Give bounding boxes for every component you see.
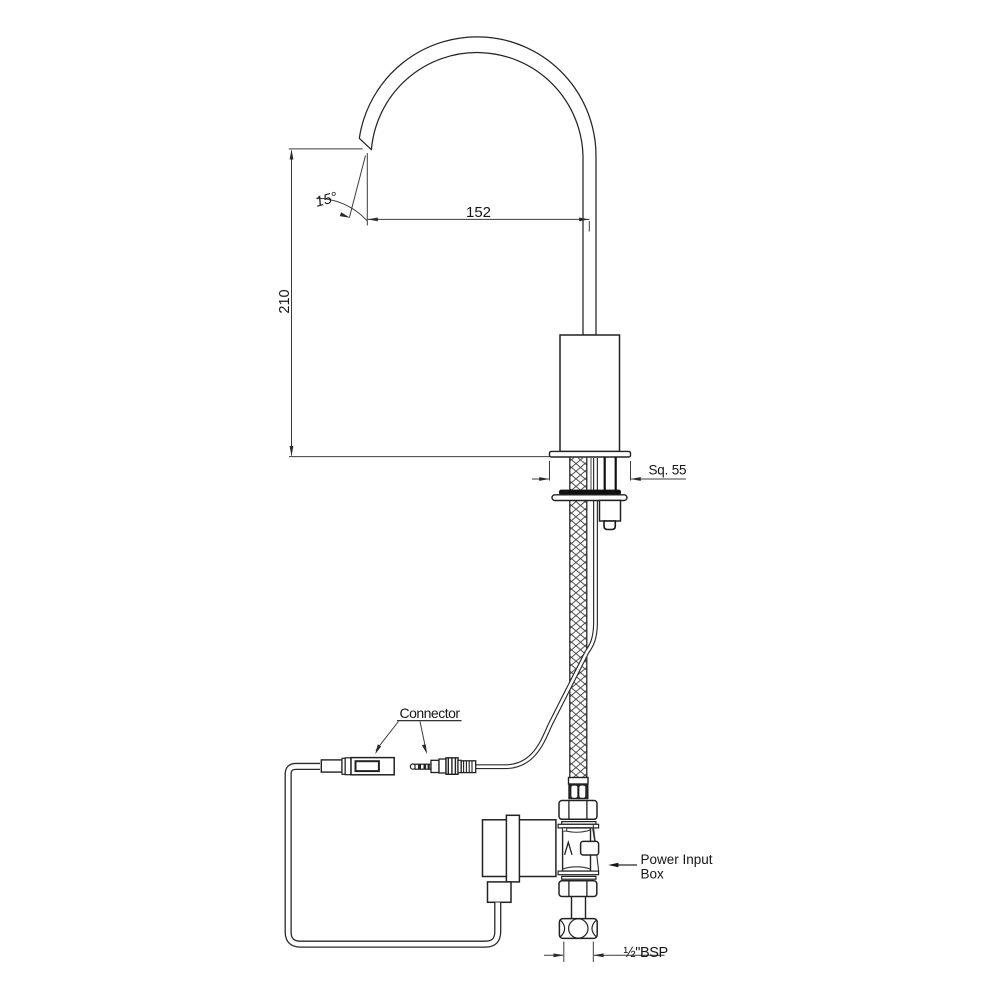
- svg-text:152: 152: [466, 204, 491, 221]
- svg-text:Box: Box: [641, 867, 665, 882]
- svg-text:15°: 15°: [314, 190, 340, 211]
- svg-text:½"BSP: ½"BSP: [624, 945, 668, 961]
- svg-text:Connector: Connector: [399, 705, 460, 721]
- svg-text:Power Input: Power Input: [641, 852, 713, 867]
- svg-text:Sq. 55: Sq. 55: [649, 463, 687, 478]
- svg-text:210: 210: [277, 289, 293, 313]
